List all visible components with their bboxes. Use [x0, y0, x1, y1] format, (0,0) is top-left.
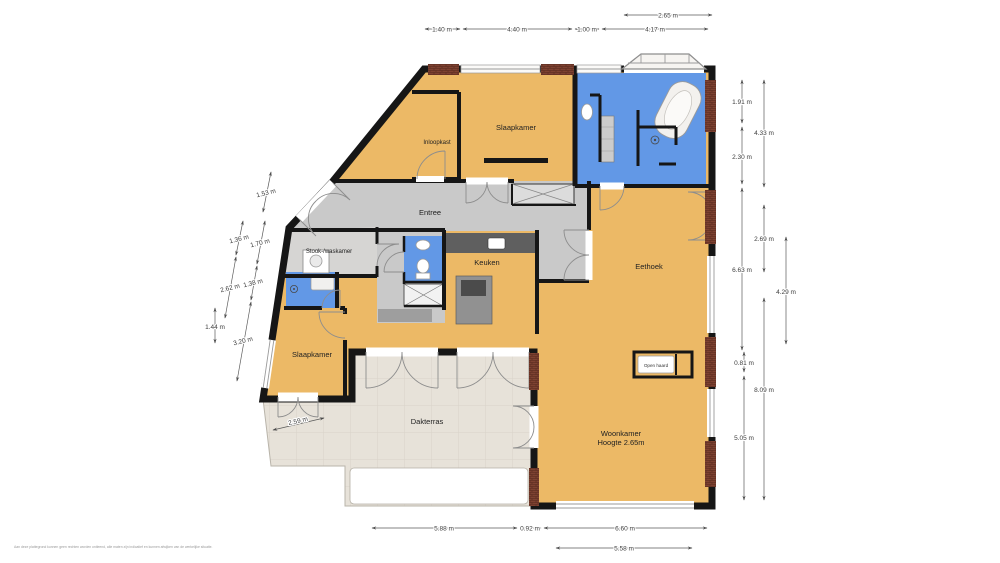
room-label-slaapkamer-boven: Slaapkamer: [496, 123, 537, 132]
bed-headboard: [484, 158, 548, 163]
masonry-left-2: [529, 468, 539, 506]
dim-right-081: 0.81 m: [734, 360, 754, 367]
dim-bottom-558: 5.58 m: [614, 546, 634, 553]
room-label-open-haard: Open haard: [644, 363, 669, 368]
toilet-sink-icon: [416, 240, 430, 250]
dim-right-191: 1.91 m: [732, 99, 752, 106]
room-label-eethoek: Eethoek: [635, 262, 663, 271]
bathroom-cabinet: [601, 116, 614, 162]
window-right-1: [707, 256, 717, 333]
dim-left-144: 1.44 m: [205, 324, 225, 331]
masonry-top-2: [541, 64, 574, 75]
room-label-keuken: Keuken: [474, 258, 499, 267]
disclaimer-text: Aan deze plattegrond kunnen geen rechten…: [14, 545, 213, 549]
dim-right-433: 4.33 m: [754, 130, 774, 137]
room-label-woonkamer: Woonkamer: [601, 429, 642, 438]
masonry-left-1: [529, 353, 539, 390]
dim-right-663: 6.63 m: [732, 267, 752, 274]
window-right-2: [707, 389, 717, 437]
dim-bottom-660: 6.60 m: [615, 526, 635, 533]
room-label-dakterras: Dakterras: [411, 417, 444, 426]
masonry-right-3: [705, 337, 716, 387]
dim-right-505: 5.05 m: [734, 435, 754, 442]
bay-window: [622, 54, 706, 73]
floorplan-canvas: 2.65 m 1.40 m 4.40 m 1.00 m 4.17 m 5.88 …: [0, 0, 1000, 563]
dim-right-809: 8.09 m: [754, 387, 774, 394]
kitchen-sink-icon: [488, 238, 505, 249]
wardrobe: [512, 184, 574, 204]
dim-left-262: 2.62 m: [220, 283, 241, 295]
dim-top-440: 4.40 m: [507, 27, 527, 34]
room-label-entree: Entree: [419, 208, 441, 217]
dim-bottom-092: 0.92 m: [520, 526, 540, 533]
room-label-inloopkast: Inloopkast: [423, 140, 451, 146]
dim-top-140: 1.40 m: [432, 27, 452, 34]
dim-right-230: 2.30 m: [732, 154, 752, 161]
dim-right-269: 2.69 m: [754, 236, 774, 243]
bathroom-sink-icon: [582, 104, 593, 120]
masonry-right-2: [705, 190, 716, 244]
dim-left-136: 1.36 m: [229, 234, 250, 246]
masonry-top-1: [428, 64, 459, 75]
masonry-right-4: [705, 441, 716, 487]
floorplan-svg: 2.65 m 1.40 m 4.40 m 1.00 m 4.17 m 5.88 …: [0, 0, 1000, 563]
room-label-slaapkamer-links: Slaapkamer: [292, 350, 333, 359]
dim-top-265: 2.65 m: [658, 13, 678, 20]
room-label-woonkamer-hoogte: Hoogte 2.65m: [597, 438, 644, 447]
closet-hall: [404, 284, 443, 306]
dim-right-429: 4.29 m: [776, 289, 796, 296]
dim-bottom-588: 5.88 m: [434, 526, 454, 533]
terrace-planter: [350, 468, 528, 504]
dim-top-417: 4.17 m: [645, 27, 665, 34]
dim-top-100: 1.00 m: [577, 27, 597, 34]
kitchen-island: [456, 276, 492, 324]
room-label-stook-waskamer: Stook-/waskamer: [306, 249, 352, 255]
window-bottom: [556, 501, 694, 511]
masonry-right-1: [705, 80, 716, 132]
toilet-icon: [416, 259, 430, 279]
doormat: [378, 309, 432, 322]
